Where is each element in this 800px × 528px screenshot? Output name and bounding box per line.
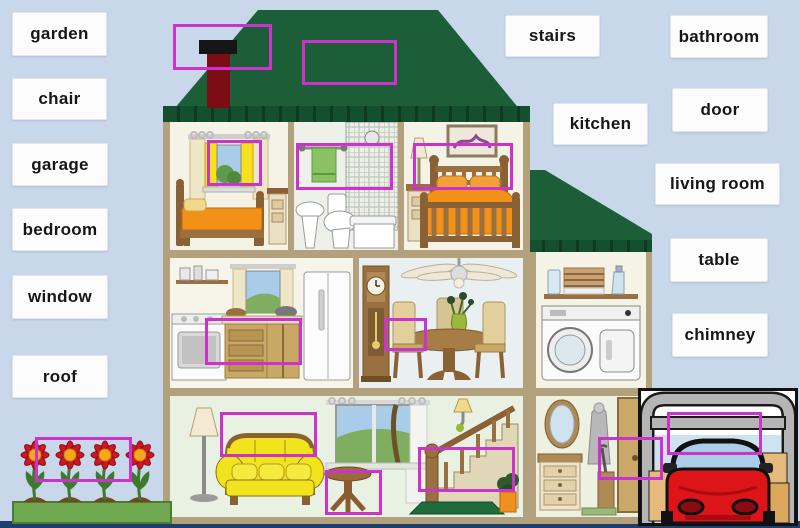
dryer-door — [600, 330, 634, 372]
rug — [410, 502, 504, 514]
label-kitchen[interactable]: kitchen — [553, 103, 648, 145]
nightstand — [267, 188, 288, 194]
hall-dresser — [538, 454, 582, 462]
chair-right — [483, 302, 505, 346]
label-garden[interactable]: garden — [12, 12, 107, 56]
bleach-bottle — [612, 272, 624, 294]
plant-pot — [500, 492, 516, 512]
main-roof-eave — [163, 106, 530, 122]
wall-sconce — [454, 399, 472, 412]
house-vocabulary-worksheet: garden chair garage bedroom window roof … — [0, 0, 800, 528]
garage-contents — [641, 391, 795, 523]
highlight-kitchen-cabinets[interactable] — [205, 318, 302, 365]
kitchen-shelf — [176, 280, 228, 284]
highlight-chimney[interactable] — [173, 24, 272, 70]
detergent-bottle — [548, 270, 560, 294]
label-door[interactable]: door — [672, 88, 768, 132]
highlight-roof[interactable] — [302, 40, 397, 85]
label-chair[interactable]: chair — [12, 78, 107, 120]
highlight-stairs-post[interactable] — [418, 447, 515, 492]
grass-strip — [13, 502, 171, 523]
highlight-bed[interactable] — [413, 143, 513, 190]
highlight-garden-flowers[interactable] — [35, 437, 132, 482]
highlight-dining-chair[interactable] — [384, 318, 427, 351]
label-stairs[interactable]: stairs — [505, 15, 600, 57]
kitchen-curtain-rod — [230, 264, 296, 269]
highlight-garage-door[interactable] — [667, 412, 762, 455]
highlight-side-table[interactable] — [325, 470, 382, 515]
label-garage[interactable]: garage — [12, 143, 108, 186]
highlight-sofa-back[interactable] — [220, 412, 317, 457]
label-roof[interactable]: roof — [12, 355, 108, 398]
room-laundry — [536, 252, 646, 388]
highlight-hall-umbrella-stand[interactable] — [598, 437, 663, 480]
label-bathroom[interactable]: bathroom — [670, 15, 768, 58]
laundry-furniture — [536, 252, 646, 388]
highlight-bedroom-window[interactable] — [207, 140, 262, 186]
label-table[interactable]: table — [670, 238, 768, 282]
floor-lamp — [190, 408, 218, 436]
door-mat — [582, 508, 616, 515]
label-window[interactable]: window — [12, 275, 108, 319]
pillow — [184, 199, 206, 211]
label-chimney[interactable]: chimney — [672, 313, 768, 357]
label-bedroom[interactable]: bedroom — [12, 208, 108, 251]
highlight-bathroom-towel[interactable] — [296, 143, 393, 190]
laundry-shelf — [544, 294, 638, 299]
label-living-room[interactable]: living room — [655, 163, 780, 205]
annex-roof-eave — [528, 240, 652, 252]
